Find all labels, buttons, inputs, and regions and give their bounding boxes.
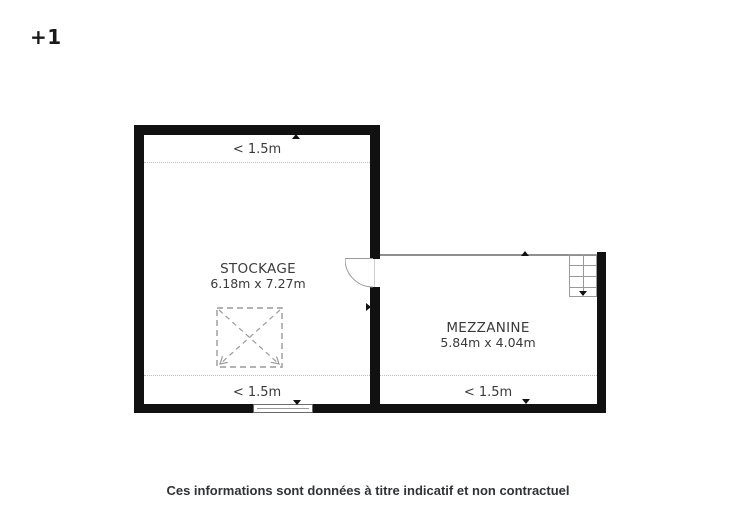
wall-mezzanine-right [597, 252, 606, 413]
room-name-stockage: STOCKAGE [220, 262, 296, 277]
stockage-top-height-zone-line [144, 162, 370, 163]
floor-opening-symbol [215, 306, 285, 370]
room-size-stockage: 6.18m x 7.27m [210, 277, 305, 291]
window-symbol [253, 404, 313, 413]
marker-arrow-down-icon [522, 399, 530, 404]
stairs-down-arrow-icon [579, 291, 587, 296]
window-pane-line [257, 408, 309, 409]
mezzanine-top-edge-line [380, 254, 597, 256]
wall-stockage-top [134, 125, 380, 135]
wall-stockage-left [134, 125, 144, 413]
height-limit-label-stockage-top: < 1.5m [233, 143, 281, 157]
stairs-direction-line [583, 254, 584, 291]
height-limit-label-mezzanine-bottom: < 1.5m [464, 386, 512, 400]
stockage-bottom-height-zone-line [144, 375, 370, 376]
marker-arrow-up-icon [521, 251, 529, 256]
marker-arrow-right-icon [366, 303, 371, 311]
wall-partition-upper [370, 125, 380, 259]
marker-arrow-down-icon [293, 400, 301, 405]
room-size-mezzanine: 5.84m x 4.04m [440, 336, 535, 350]
wall-partition-lower [370, 287, 380, 406]
mezzanine-bottom-height-zone-line [380, 375, 597, 376]
floor-level-badge: +1 [30, 25, 62, 49]
room-name-mezzanine: MEZZANINE [446, 321, 529, 336]
door-swing-arc [345, 258, 375, 288]
height-limit-label-stockage-bottom: < 1.5m [233, 386, 281, 400]
floorplan-page: +1 < 1.5m STOCKAGE 6 [0, 0, 736, 520]
marker-arrow-up-icon [292, 134, 300, 139]
disclaimer-text: Ces informations sont données à titre in… [0, 483, 736, 498]
